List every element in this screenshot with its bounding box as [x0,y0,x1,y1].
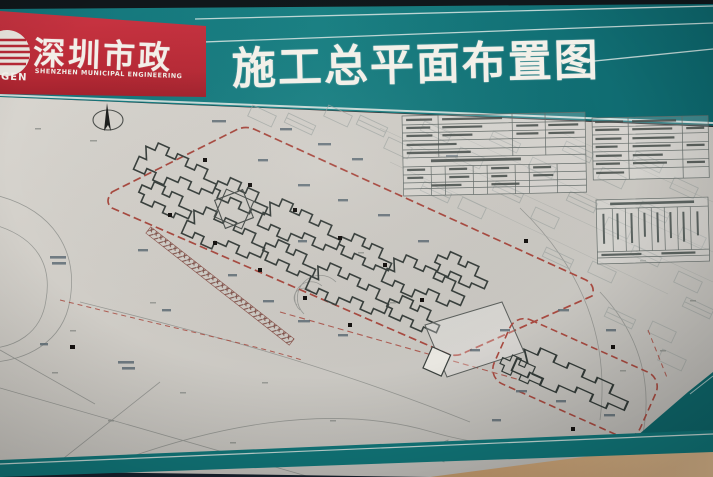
photo-construction-board: GEN 深圳市政 SHENZHEN MUNICIPAL ENGINEERING … [0,0,713,477]
banner-title: 施工总平面布置图 [231,24,600,97]
brand-emblem-text: GEN [1,72,28,84]
